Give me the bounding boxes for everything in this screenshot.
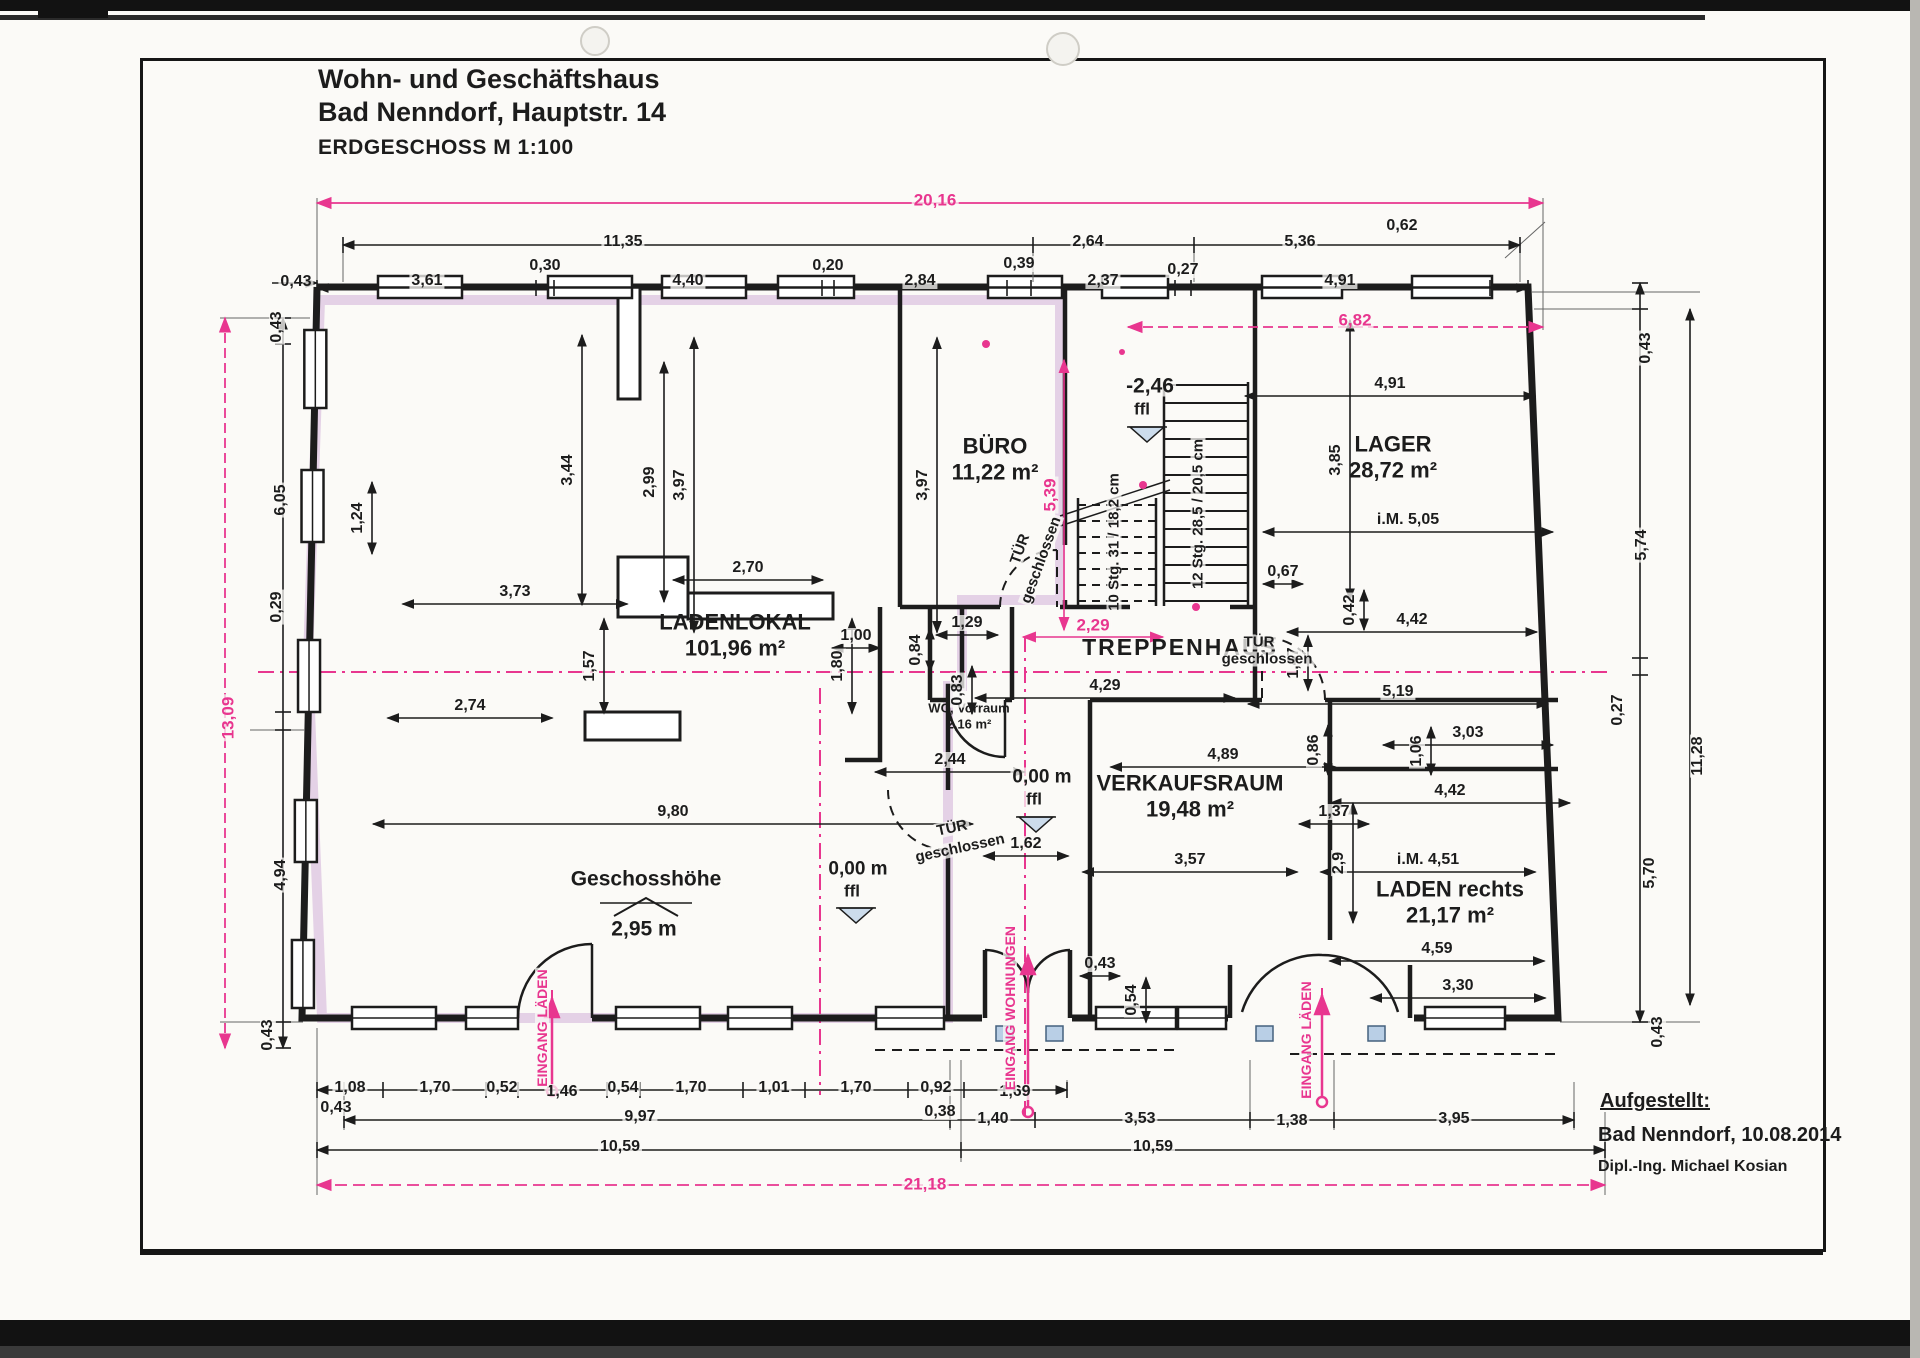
dimension-label: 11,28 [1690,734,1706,777]
dimension-label: 3,30 [1440,978,1475,994]
dimension-label: 4,42 [1394,612,1429,628]
dimension-label: 0,62 [1384,218,1419,234]
annotation-label: Geschosshöhe [569,869,724,890]
dimension-label: 9,97 [622,1109,657,1125]
dimension-label: 3,85 [1328,442,1344,477]
dimension-label: 5,70 [1642,855,1658,890]
dimension-label: 4,42 [1432,783,1467,799]
dimension-label: 2,99 [642,464,658,499]
annotation-label: -2,46 [1124,376,1176,397]
dimension-label: 3,44 [560,452,576,487]
dimension-label: 1,38 [1274,1113,1309,1129]
dimension-label: 0,43 [318,1100,353,1116]
dimension-label: 0,84 [908,632,924,667]
dimension-label: 0,29 [269,589,285,624]
dimension-label: 0,30 [527,258,562,274]
dimension-label: 1,40 [975,1111,1010,1127]
room-area: 21,17 m² [1376,903,1524,929]
dimension-label: 1,70 [673,1080,708,1096]
annotation-label: EINGANG WOHNUNGEN [1003,924,1017,1092]
dimension-label: 0,27 [1610,692,1626,727]
dimension-label: 5,74 [1634,527,1650,562]
annotation-label: EINGANG LÄDEN [535,967,549,1088]
dimension-label: 2,84 [902,273,937,289]
dimension-label: 0,43 [1638,330,1654,365]
dimension-label: 6,05 [273,482,289,517]
dimension-label: 0,43 [269,309,285,344]
dimension-label-pink: 13,09 [220,695,237,742]
room-label: LAGER28,72 m² [1349,432,1437,485]
attribution-date: Bad Nenndorf, 10.08.2014 [1598,1124,1841,1147]
dimension-label: 1,57 [582,648,598,683]
dimension-label: 2,70 [730,560,765,576]
dimension-label: 1,80 [830,648,846,683]
dimension-label: 1,62 [1008,836,1043,852]
room-name: BÜRO [952,434,1039,460]
drawing-title-line1: Wohn- und Geschäftshaus [318,64,660,95]
dimension-label: 3,57 [1172,852,1207,868]
dimension-label: 11,35 [601,234,644,250]
dimension-label-pink: 20,16 [912,192,959,209]
dimension-label: 0,39 [1001,256,1036,272]
dimension-label: i.M. 5,05 [1375,512,1441,528]
scanned-floor-plan-page: Wohn- und Geschäftshaus Bad Nenndorf, Ha… [0,0,1920,1358]
dimension-label: 2,9 [1331,850,1347,876]
dimension-label: 1,00 [838,628,873,644]
dimension-label: 0,38 [922,1104,957,1120]
dimension-label: 2,74 [452,698,487,714]
dimension-label: 3,73 [497,584,532,600]
dimension-label: 2,64 [1070,234,1105,250]
dimension-label: 0,54 [605,1080,640,1096]
room-label: WC, Vorraum2,16 m² [928,700,1009,731]
dimension-label: 9,80 [655,804,690,820]
room-area: 28,72 m² [1349,458,1437,484]
dimension-label: 5,19 [1380,684,1415,700]
dimension-label: 0,67 [1265,564,1300,580]
room-name: LADENLOKAL [659,610,811,636]
dimension-label: 1,37 [1316,804,1351,820]
dimension-label: 5,36 [1282,234,1317,250]
annotation-label: TÜR [1242,635,1277,650]
dimension-label: 10,59 [1131,1139,1175,1155]
dimension-label: 0,52 [484,1080,519,1096]
annotation-label: ffl [1132,401,1152,418]
dimension-label: 0,54 [1124,982,1140,1017]
annotation-label: geschlossen [1220,652,1315,667]
dimension-label: 0,43 [1650,1014,1666,1049]
room-area: 19,48 m² [1097,797,1284,823]
annotation-label: EINGANG LÄDEN [1299,979,1313,1100]
dimension-label: 1,24 [350,500,366,535]
dimension-label: 1,01 [756,1080,791,1096]
room-name: LAGER [1349,432,1437,458]
dimension-label: 1,08 [332,1080,367,1096]
dimension-label: 4,89 [1205,747,1240,763]
annotation-label: 12 Stg. 28,5 / 20,5 cm [1191,437,1206,591]
attribution-author: Dipl.-Ing. Michael Kosian [1598,1158,1787,1176]
dimension-label-pink: 5,39 [1042,476,1059,513]
dimension-label-pink: 6,82 [1336,312,1373,329]
dimension-label: 4,59 [1419,941,1454,957]
annotation-label: 2,95 m [609,919,678,940]
dimension-label: 1,70 [838,1080,873,1096]
dimension-label: 10,59 [598,1139,642,1155]
dimension-label: 3,97 [915,467,931,502]
dimension-label: 0,83 [950,672,966,707]
annotation-label: 10 Stg. 31 / 18,2 cm [1107,471,1122,613]
room-name: LADEN rechts [1376,877,1524,903]
annotation-label: ffl [842,883,862,900]
annotation-label: ffl [1024,791,1044,808]
dimension-label: 2,37 [1085,273,1120,289]
dimension-label: i.M. 4,51 [1395,852,1461,868]
dimension-label: 4,91 [1322,273,1357,289]
dimension-label: 0,42 [1342,592,1358,627]
room-name: VERKAUFSRAUM [1097,771,1284,797]
dimension-label: 0,86 [1306,732,1322,767]
dimension-label: 0,27 [1165,262,1200,278]
room-label: LADEN rechts21,17 m² [1376,877,1524,930]
dimension-label: 4,40 [670,273,705,289]
dimension-label: 1,70 [417,1080,452,1096]
dimension-label: 4,29 [1087,678,1122,694]
dimension-label: 3,97 [672,467,688,502]
dimension-label-pink: 2,29 [1074,617,1111,634]
annotation-label: 0,00 m [1010,768,1073,787]
room-name: WC, Vorraum [928,700,1009,716]
attribution-heading: Aufgestellt: [1600,1090,1710,1113]
dimension-label: 3,53 [1122,1111,1157,1127]
dimension-label: 0,43 [260,1017,276,1052]
dimension-label: 3,03 [1450,725,1485,741]
dimension-label: 0,92 [918,1080,953,1096]
room-label: BÜRO11,22 m² [952,434,1039,487]
dimension-label: 2,44 [932,752,967,768]
dimension-label: 4,91 [1372,376,1407,392]
room-label: LADENLOKAL101,96 m² [659,610,811,663]
room-area: 2,16 m² [928,716,1009,732]
drawing-title-line2: Bad Nenndorf, Hauptstr. 14 [318,97,666,128]
drawing-scale-label: ERDGESCHOSS M 1:100 [318,136,574,160]
room-area: 11,22 m² [952,460,1039,486]
dimension-label-pink: 21,18 [902,1176,949,1193]
doors [518,700,1398,1018]
dimension-label: 3,95 [1436,1111,1471,1127]
dimension-label: 1,29 [949,615,984,631]
dimension-label: 4,94 [273,857,289,892]
room-area: 101,96 m² [659,636,811,662]
room-label: VERKAUFSRAUM19,48 m² [1097,771,1284,824]
staircase [1060,382,1248,606]
annotation-label: 0,00 m [826,860,889,879]
dimension-label: 3,61 [409,273,444,289]
dimension-label: 1,06 [1409,733,1425,768]
dimension-label: 0,43 [1082,956,1117,972]
dimension-label: 0,43 [278,274,313,290]
dimension-label: 0,20 [810,258,845,274]
